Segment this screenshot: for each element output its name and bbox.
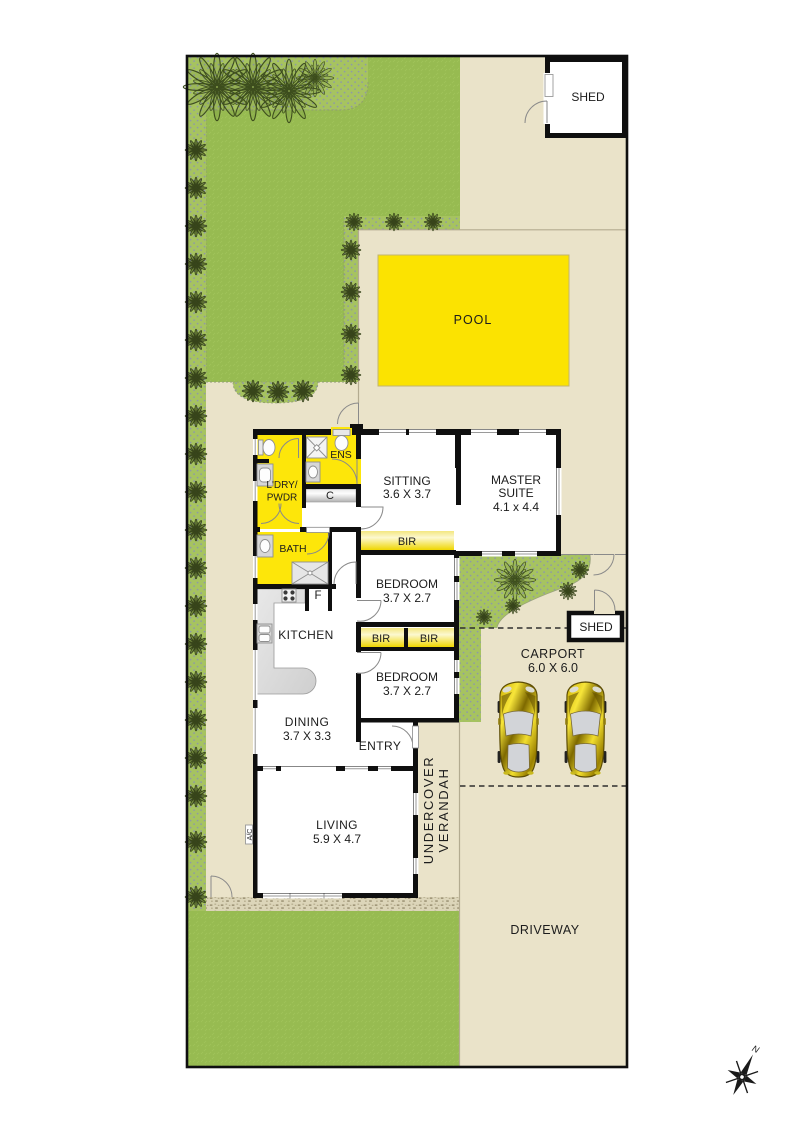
svg-text:3.7 X 2.7: 3.7 X 2.7 [383,684,431,698]
svg-text:BIR: BIR [420,633,438,645]
svg-text:F: F [314,590,321,602]
svg-text:KITCHEN: KITCHEN [278,628,333,642]
svg-text:BIR: BIR [372,633,390,645]
svg-text:L'DRY/: L'DRY/ [266,480,297,491]
svg-text:3.7 X 2.7: 3.7 X 2.7 [383,591,431,605]
svg-text:BEDROOM: BEDROOM [376,577,438,591]
svg-text:POOL: POOL [454,313,493,327]
svg-text:MASTER: MASTER [491,473,541,487]
svg-text:VERANDAH: VERANDAH [436,767,451,852]
svg-text:DRIVEWAY: DRIVEWAY [510,923,579,937]
svg-text:LIVING: LIVING [316,818,358,832]
svg-text:ENS: ENS [330,449,352,461]
svg-text:CARPORT: CARPORT [521,647,585,661]
svg-text:SUITE: SUITE [498,486,533,500]
svg-text:C: C [326,490,334,502]
svg-text:DINING: DINING [285,715,329,729]
svg-text:SITTING: SITTING [383,474,430,488]
svg-text:3.7 X 3.3: 3.7 X 3.3 [283,729,331,743]
svg-text:5.9 X 4.7: 5.9 X 4.7 [313,832,361,846]
svg-text:BATH: BATH [279,543,306,555]
svg-text:ENTRY: ENTRY [359,739,401,753]
svg-text:A/C: A/C [247,829,254,841]
svg-text:3.6 X 3.7: 3.6 X 3.7 [383,487,431,501]
svg-text:6.0 X 6.0: 6.0 X 6.0 [528,661,578,675]
svg-text:4.1 x 4.4: 4.1 x 4.4 [493,500,539,514]
svg-text:PWDR: PWDR [267,493,298,504]
svg-text:SHED: SHED [571,90,605,104]
svg-text:BEDROOM: BEDROOM [376,670,438,684]
svg-text:SHED: SHED [579,620,613,634]
svg-text:BIR: BIR [398,536,416,548]
svg-text:UNDERCOVER: UNDERCOVER [421,756,436,864]
